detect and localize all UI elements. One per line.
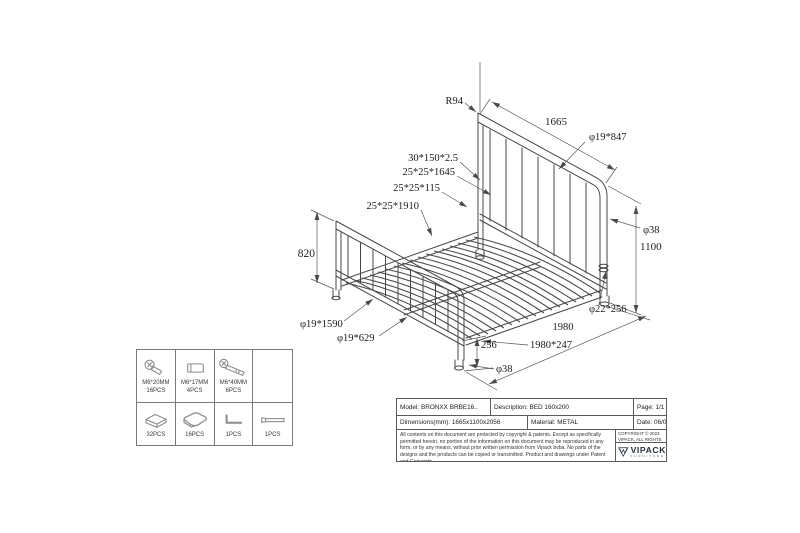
dimension-label-dia22-256: φ22*256 <box>589 304 627 315</box>
dimension-label-25-25-1910: 25*25*1910 <box>367 201 420 212</box>
part-qty: 1PCS <box>226 432 242 440</box>
barrel-nut-icon <box>178 357 212 379</box>
part-cell-barrel-nut: M6*17MM 4PCS <box>176 350 215 403</box>
part-cell-plastic-cap: 32PCS <box>137 403 176 445</box>
part-cell-plastic-glide: 16PCS <box>176 403 215 445</box>
title-block-material: Material: METAL <box>528 416 634 430</box>
part-spec: M6*20MM <box>142 380 169 388</box>
dimension-label-820: 820 <box>298 248 316 260</box>
hardware-parts-table: M6*20MM 16PCS M6*17MM 4PCS M6*40MM 6PCS <box>136 349 293 446</box>
dimension-label-dia38-right: φ38 <box>643 225 660 236</box>
dimension-label-1980: 1980 <box>553 322 574 333</box>
vipack-logo-wordmark: VIPACK <box>631 446 666 455</box>
part-cell-bolt-long: M6*40MM 6PCS <box>215 350 254 403</box>
technical-drawing-page: R94 1665 φ19*847 φ38 1100 30*150*2.5 25*… <box>0 0 800 533</box>
dimension-label-25-25-1645: 25*25*1645 <box>403 167 456 178</box>
vipack-logo-subtitle: FURNITURE <box>631 455 666 458</box>
title-block-copyright: COPYRIGHT © 2023 VIPACK, ALL RIGHTS RESE… <box>616 430 666 443</box>
part-cell-wrench: 1PCS <box>253 403 292 445</box>
part-cell-bolt-short: M6*20MM 16PCS <box>137 350 176 403</box>
part-qty: 6PCS <box>226 388 242 396</box>
title-block-model: Model: BRONXX BRBE16.. <box>397 399 491 416</box>
plastic-cap-icon <box>139 409 173 431</box>
dimension-label-1665: 1665 <box>545 116 568 128</box>
dimension-label-slat: 30*150*2.5 <box>408 153 458 164</box>
allen-key-icon <box>216 409 250 431</box>
part-qty: 4PCS <box>187 388 203 396</box>
part-spec: M6*17MM <box>181 380 208 388</box>
dimension-label-25-25-115: 25*25*115 <box>393 183 440 194</box>
part-qty: 16PCS <box>185 432 204 440</box>
part-cell-allen-key: 1PCS <box>215 403 254 445</box>
dimension-label-dia19-1590: φ19*1590 <box>300 319 343 330</box>
part-cell-empty <box>253 350 292 403</box>
dimension-label-1980-247: 1980*247 <box>530 340 572 351</box>
wrench-icon <box>256 409 290 431</box>
part-spec: M6*40MM <box>220 380 247 388</box>
dimension-label-r94: R94 <box>445 96 463 107</box>
bolt-long-icon <box>216 357 250 379</box>
title-block-description: Description: BED 160x200 <box>491 399 634 416</box>
title-block-dimensions: Dimensions(mm): 1665x1100x2056 <box>397 416 528 430</box>
vipack-logo-icon <box>618 446 629 458</box>
title-block-page: Page: 1/1 <box>634 399 666 416</box>
part-qty: 32PCS <box>146 432 165 440</box>
dimension-label-1100: 1100 <box>640 241 662 253</box>
title-block-legal-text: All contents on this document are protec… <box>397 430 616 461</box>
dimension-label-256: 256 <box>481 340 497 351</box>
title-block: Model: BRONXX BRBE16.. Description: BED … <box>396 398 667 462</box>
dimension-label-dia19-629: φ19*629 <box>337 333 375 344</box>
bolt-short-icon <box>139 357 173 379</box>
part-qty: 1PCS <box>265 432 281 440</box>
dimension-label-dia38-front: φ38 <box>496 364 513 375</box>
plastic-glide-icon <box>178 409 212 431</box>
dimension-label-dia19-847: φ19*847 <box>589 132 627 143</box>
title-block-date: Date: 06/03/2023 <box>634 416 666 430</box>
vipack-logo: VIPACK FURNITURE <box>616 443 666 461</box>
part-qty: 16PCS <box>146 388 165 396</box>
